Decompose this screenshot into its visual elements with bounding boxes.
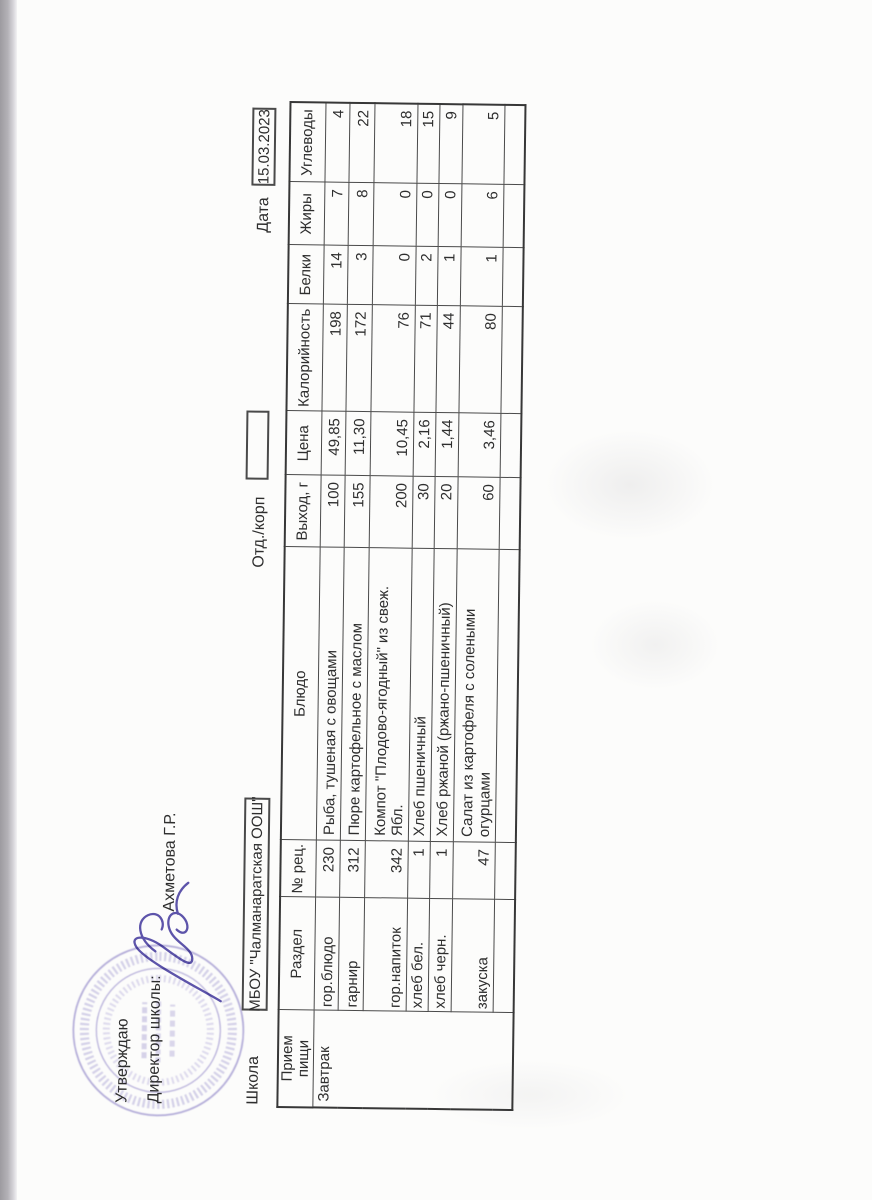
scanned-document-page: Утверждаю Директор школы: Ахметова Г.Р. … — [0, 0, 872, 1200]
cell-fat: 7 — [325, 183, 350, 246]
cell-out: 155 — [345, 476, 371, 548]
column-header-2: № рец. — [280, 840, 317, 897]
cell-section: закуска — [451, 899, 494, 1013]
director-signature — [125, 873, 237, 1009]
cell-carbs: 9 — [439, 104, 463, 184]
cell-section — [493, 900, 514, 1013]
cell-section: хлеб черн. — [428, 899, 452, 1012]
dept-value-box — [246, 411, 270, 480]
column-header-4: Выход, г — [285, 475, 322, 547]
cell-out: 100 — [321, 475, 346, 547]
cell-carbs: 15 — [417, 104, 440, 184]
document-sheet: Утверждаю Директор школы: Ахметова Г.Р. … — [0, 0, 872, 1200]
cell-section: гор.напиток — [363, 898, 407, 1012]
column-header-0: Прием пищи — [277, 1010, 314, 1107]
cell-price: 3,46 — [458, 413, 501, 478]
cell-rec: 312 — [340, 841, 366, 898]
cell-dish: Пюре картофельное с маслом — [341, 548, 370, 841]
cell-cal: 198 — [322, 305, 347, 412]
column-header-1: Раздел — [279, 897, 316, 1010]
cell-cal: 76 — [371, 305, 415, 413]
cell-cal: 44 — [436, 306, 460, 413]
menu-table-body: Завтракгор.блюдо230Рыба, тушеная с овоща… — [313, 103, 525, 1111]
cell-carbs — [504, 105, 525, 185]
meal-cell: Завтрак — [313, 1010, 513, 1110]
cell-price: 1,44 — [435, 413, 459, 477]
cell-fat: 0 — [374, 183, 418, 247]
column-header-8: Жиры — [289, 182, 326, 245]
column-header-5: Цена — [286, 411, 323, 475]
date-label: Дата — [255, 197, 273, 233]
cell-price: 11,30 — [345, 412, 371, 476]
cell-protein: 1 — [438, 247, 462, 306]
cell-out: 20 — [435, 477, 459, 549]
cell-section: хлеб бел. — [406, 899, 429, 1012]
cell-price: 2,16 — [413, 413, 436, 477]
cell-out: 30 — [413, 477, 436, 549]
cell-protein: 3 — [348, 246, 374, 305]
cell-protein: 0 — [373, 246, 417, 306]
cell-rec: 1 — [408, 842, 431, 899]
column-header-6: Калорийность — [286, 304, 323, 411]
cell-rec: 342 — [365, 841, 409, 899]
cell-rec: 230 — [316, 840, 341, 897]
cell-carbs: 22 — [349, 103, 375, 183]
dept-label: Отд./корп — [250, 496, 269, 567]
cell-price: 49,85 — [321, 411, 346, 475]
cell-fat: 8 — [349, 183, 375, 246]
cell-section: гарнир — [338, 898, 364, 1011]
cell-cal — [501, 307, 522, 414]
column-header-9: Углеводы — [289, 102, 326, 182]
column-header-3: Блюдо — [281, 547, 321, 840]
cell-section: гор.блюдо — [314, 897, 339, 1010]
scanner-edge-shadow — [0, 0, 17, 1200]
cell-cal: 71 — [414, 306, 437, 413]
cell-cal: 80 — [459, 306, 502, 414]
cell-out: 200 — [370, 476, 414, 549]
cell-rec: 1 — [430, 842, 454, 899]
cell-dish — [496, 550, 520, 843]
cell-rec: 47 — [453, 842, 496, 900]
cell-price — [500, 414, 521, 478]
cell-protein — [503, 248, 524, 307]
cell-dish: Салат из картофеля с солеными огурцами — [454, 549, 500, 843]
cell-dish: Компот "Плодово-ягодный" из свеж. Ябл. — [366, 548, 413, 842]
cell-carbs: 18 — [374, 103, 418, 184]
cell-rec — [495, 843, 516, 900]
menu-table: Прием пищиРаздел№ рец.БлюдоВыход, гЦенаК… — [276, 101, 526, 1111]
cell-fat: 0 — [438, 184, 462, 247]
date-value-box: 15.03.2023 — [251, 108, 276, 186]
cell-carbs: 4 — [325, 103, 350, 183]
school-name-box: МБОУ "Чалманаратская ООШ" — [242, 798, 271, 1011]
cell-price: 10,45 — [370, 412, 414, 477]
cell-carbs: 5 — [462, 104, 505, 185]
cell-out: 60 — [458, 477, 501, 550]
cell-fat: 6 — [461, 184, 504, 248]
cell-fat — [503, 185, 524, 248]
cell-protein: 1 — [461, 247, 504, 307]
column-header-7: Белки — [288, 245, 325, 304]
cell-out — [500, 478, 521, 550]
cell-cal: 172 — [346, 305, 372, 412]
cell-fat: 0 — [416, 184, 439, 247]
cell-protein: 14 — [324, 246, 349, 305]
cell-protein: 2 — [416, 247, 439, 306]
school-label: Школа — [244, 1056, 263, 1105]
